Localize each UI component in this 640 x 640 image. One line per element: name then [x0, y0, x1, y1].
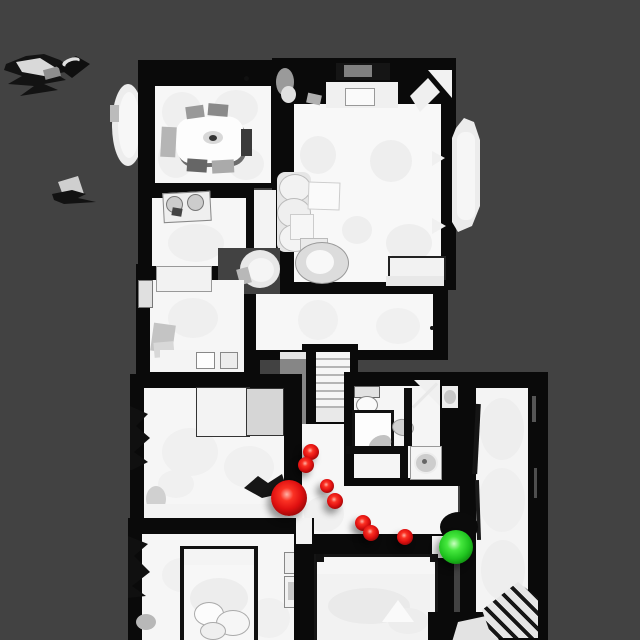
waypoint-sphere-3	[320, 479, 334, 493]
right-hall-floor-circle	[479, 468, 525, 532]
goal-sphere	[439, 530, 473, 564]
office-desk-clutter	[171, 207, 182, 217]
kitchen-radiator	[138, 280, 153, 308]
waypoint-sphere-4	[327, 493, 343, 509]
dining-chair	[160, 127, 177, 158]
armchair-seat	[306, 250, 334, 274]
bathroom-partition	[404, 388, 412, 446]
kitchen-floor-circle	[168, 298, 218, 338]
living-floor-circle	[300, 136, 336, 174]
dining-chair	[212, 159, 235, 173]
dining-chair	[185, 105, 204, 119]
living-bay-window-inner	[457, 132, 475, 220]
tv-screen-glare	[344, 65, 372, 77]
dining-bay-window-inner	[118, 92, 140, 158]
right-hall-floor-circle	[480, 398, 524, 460]
bathroom-partition	[346, 446, 406, 454]
wall-sink	[444, 390, 456, 404]
beanbag-highlight	[248, 258, 274, 282]
dining-centerpiece-dark	[209, 135, 217, 141]
living-bench-base	[386, 276, 444, 286]
bedroom2-bed-headboard	[184, 549, 254, 565]
right-wall-highlight	[532, 396, 536, 422]
bedroom1-bed-blanket	[246, 388, 284, 436]
bedroom3-bed-headboard	[317, 557, 435, 574]
office-floor-circle	[168, 224, 224, 262]
dining-bay-tab	[110, 105, 119, 122]
tv-console-drawer	[345, 88, 375, 106]
lower-landing-sliver	[280, 352, 306, 359]
corridor-door-dot	[430, 326, 434, 330]
kitchen-stove	[220, 352, 238, 369]
dining-chair	[208, 103, 229, 117]
bedroom2-door-gap	[296, 518, 312, 544]
bedroom3-bedpost	[430, 554, 438, 562]
corridor-floor-circle	[376, 308, 420, 344]
dining-chair	[187, 158, 208, 172]
hallway-upper-floor	[254, 190, 276, 248]
dining-chair	[241, 129, 252, 156]
bedroom1-bed-mattress	[196, 387, 250, 437]
kitchen-sink	[196, 352, 215, 369]
waypoint-sphere-8	[271, 480, 307, 516]
waypoint-sphere-2	[298, 457, 314, 473]
living-floor-circle	[370, 140, 412, 182]
render-viewport[interactable]	[0, 0, 640, 640]
living-wall-clutter-white	[281, 86, 296, 103]
bathroom-partition	[400, 446, 408, 478]
dining-wall-dot	[244, 76, 249, 81]
bedroom2-corner-blob	[136, 614, 156, 630]
kitchen-island	[156, 266, 212, 292]
sofa-seat	[308, 181, 341, 210]
waypoint-sphere-6	[363, 525, 379, 541]
bedroom1-floor-circle	[224, 446, 274, 488]
living-floor-circle	[342, 216, 372, 244]
vanity-drain-dot	[422, 459, 427, 464]
bedroom3-bedpost	[316, 554, 324, 562]
bedroom2-pillow	[200, 622, 226, 640]
corridor-floor-circle	[298, 300, 338, 340]
waypoint-sphere-7	[397, 529, 413, 545]
debris-small-black	[52, 190, 96, 208]
right-wall-highlight	[534, 468, 537, 498]
sofa-seat	[290, 214, 314, 240]
office-chair	[187, 194, 204, 211]
